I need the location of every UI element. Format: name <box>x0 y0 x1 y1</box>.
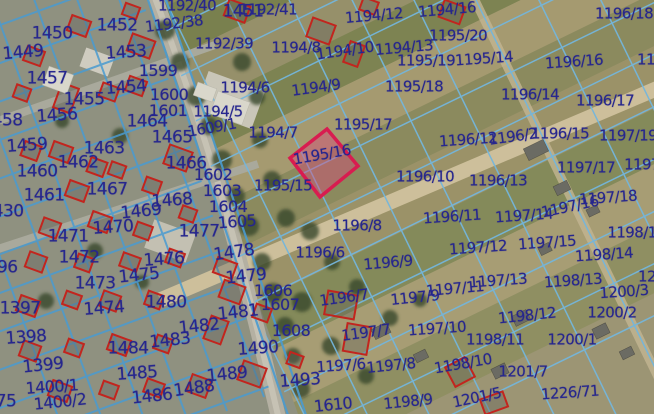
building-outline <box>25 251 47 272</box>
building-roof <box>586 205 600 217</box>
tree <box>358 368 374 384</box>
building-outline <box>445 357 475 387</box>
building-roof <box>592 323 610 339</box>
building-outline <box>142 177 162 196</box>
building-outline <box>86 157 107 177</box>
building-roof <box>538 242 553 255</box>
tree <box>263 171 281 189</box>
map-viewport[interactable]: 1192/401192/411192/381192/391194/121194/… <box>0 0 654 414</box>
building-outline <box>224 0 250 23</box>
building-roof <box>511 310 530 327</box>
building-roof <box>553 180 571 196</box>
building-outline <box>64 339 84 358</box>
building-outline <box>203 316 228 345</box>
building-outline <box>324 291 358 320</box>
building-roof <box>619 346 635 360</box>
building-outline <box>39 217 61 238</box>
building-outline <box>439 0 466 24</box>
building-outline <box>99 290 121 311</box>
building-outline <box>99 83 120 102</box>
building-outline <box>213 257 237 279</box>
parcel-line <box>0 0 321 114</box>
building-outline <box>107 334 131 356</box>
building-outline <box>359 0 378 15</box>
building-outline <box>67 15 91 37</box>
parcel-line <box>327 0 654 414</box>
building-outline <box>343 323 371 355</box>
building-outline <box>165 249 185 268</box>
tree <box>277 209 295 227</box>
building-outline <box>65 180 89 202</box>
building-outline <box>306 17 335 44</box>
building-outline <box>133 222 153 241</box>
building-roof <box>210 91 250 125</box>
building-outline <box>20 141 41 161</box>
selected-parcel-highlight[interactable] <box>290 129 358 197</box>
tree <box>413 293 427 307</box>
building-roof <box>413 349 429 363</box>
building-outline <box>480 391 508 414</box>
building-outline <box>343 41 365 67</box>
building-outline <box>119 252 141 271</box>
building-outline <box>187 374 212 398</box>
parcel-line <box>227 0 595 414</box>
parcel-overlay <box>0 0 654 414</box>
building-outline <box>62 291 82 310</box>
building-roof <box>491 363 509 379</box>
tree <box>349 279 365 295</box>
building-outline <box>13 84 32 101</box>
parcel-line <box>0 10 357 215</box>
building-outline <box>19 340 41 361</box>
building-outline <box>219 280 246 304</box>
building-outline <box>237 360 266 387</box>
building-outline <box>143 378 165 397</box>
tree <box>233 53 251 71</box>
building-outline <box>99 381 119 400</box>
